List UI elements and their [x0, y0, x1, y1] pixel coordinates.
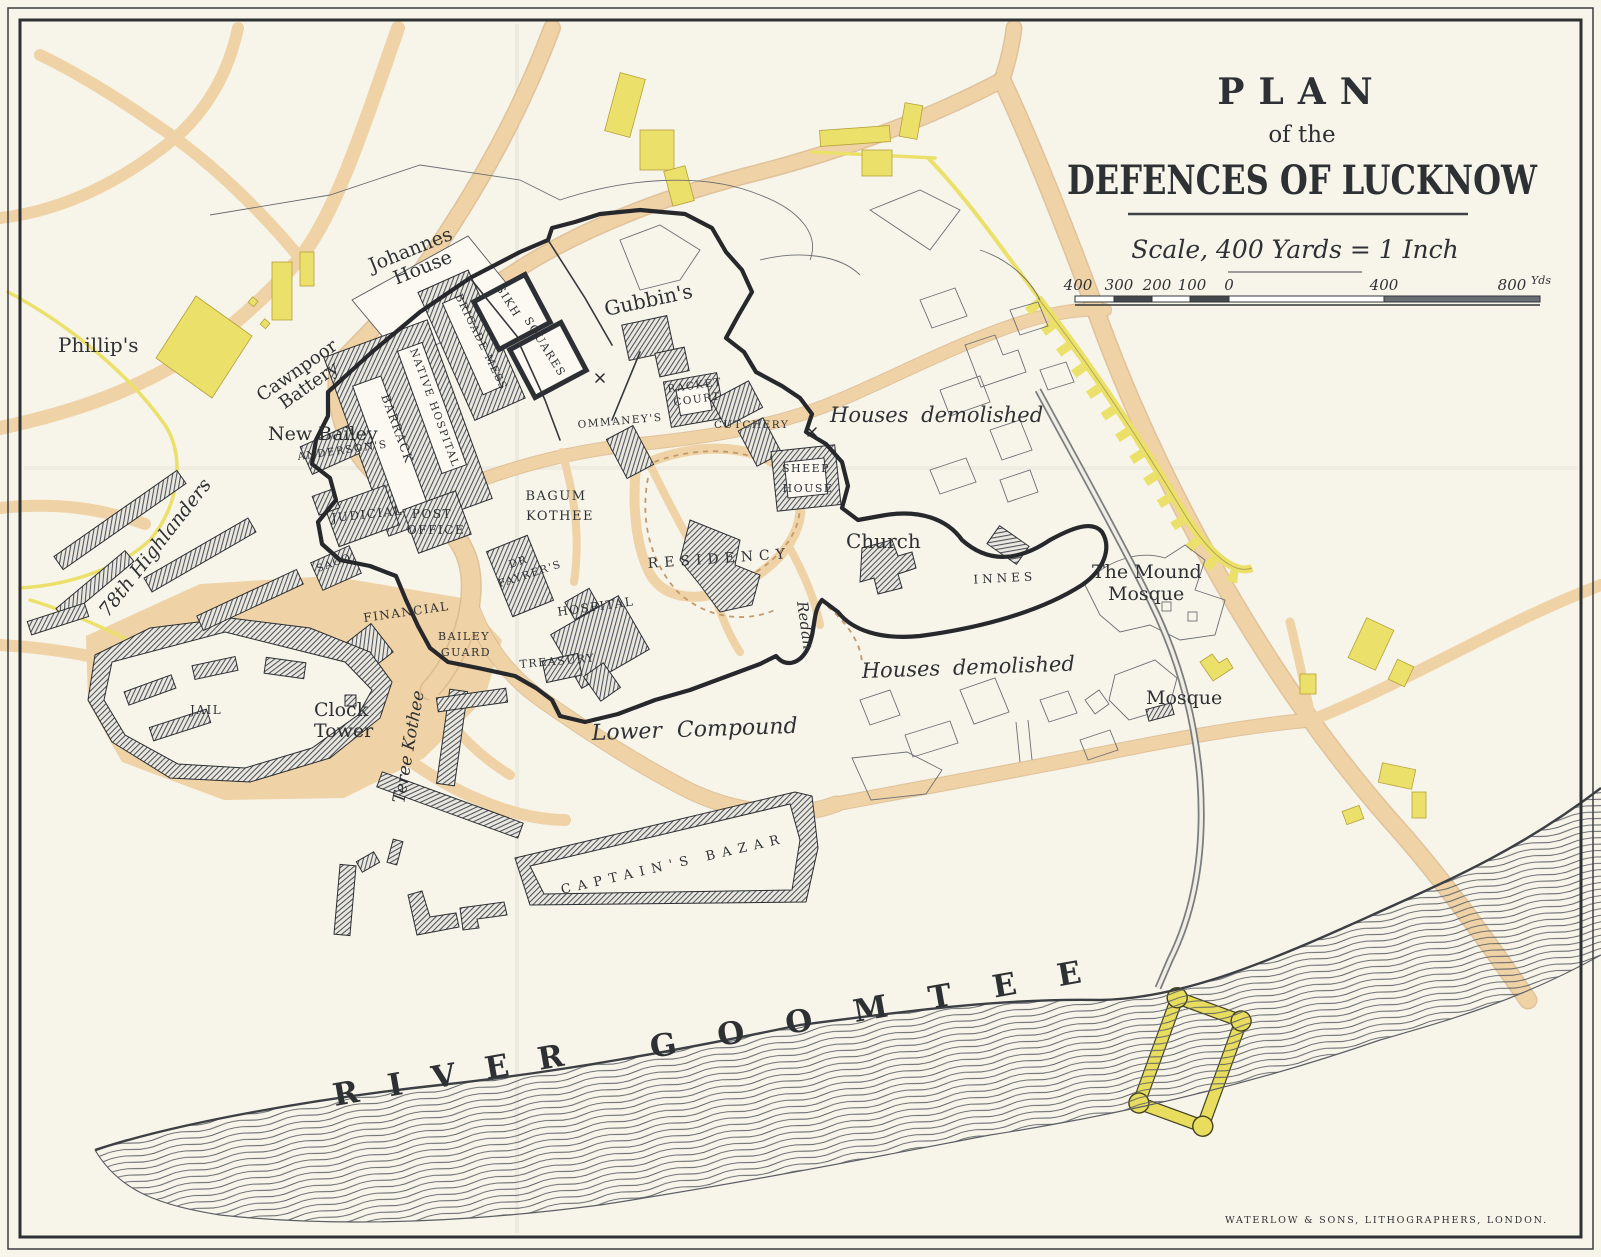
- johannes-yellow-1: [272, 262, 292, 320]
- road-south-west: [470, 604, 836, 813]
- label-post-1: POST: [412, 507, 452, 521]
- map-title-line3: DEFENCES OF LUCKNOW: [1067, 157, 1538, 204]
- mosque-yellow-chevron: [1200, 654, 1233, 681]
- scale-tick-3: 100: [1178, 276, 1207, 294]
- label-jail: JAIL: [188, 703, 222, 717]
- bazar-area-buildings: [334, 839, 507, 935]
- ommaneys-building: [606, 426, 653, 479]
- label-bailey-1: BAILEY: [438, 630, 490, 643]
- map-title-line2: of the: [1268, 122, 1335, 148]
- scale-tick-6: 800: [1498, 276, 1527, 294]
- scale-bar: 400 300 200 100 0 400 800 Yds: [1063, 274, 1552, 305]
- gubbins-buildings: [622, 316, 689, 377]
- label-sheep-1: SHEEP: [782, 462, 830, 475]
- imprint: WATERLOW & SONS, LITHOGRAPHERS, LONDON.: [1225, 1215, 1548, 1226]
- road-nw-spur: [40, 55, 300, 258]
- map-sheet: Phillip's Johannes House Cawnpoor Batter…: [0, 0, 1601, 1257]
- label-clock-1: Clock: [314, 699, 369, 721]
- scale-tick-2: 200: [1142, 276, 1172, 294]
- road-riverbank: [1002, 80, 1528, 1000]
- label-lower-compound: Lower Compound: [590, 714, 798, 746]
- label-mound-1: The Mound: [1092, 561, 1202, 583]
- road-south-east: [836, 720, 1312, 804]
- label-mosque: Mosque: [1146, 687, 1222, 709]
- label-clock-2: Tower: [314, 720, 374, 742]
- scale-tick-1: 300: [1105, 276, 1134, 294]
- map-title-line1: PLAN: [1217, 71, 1386, 113]
- label-bagum-1: BAGUM: [525, 489, 586, 504]
- lucknow-map-svg: Phillip's Johannes House Cawnpoor Batter…: [0, 0, 1601, 1257]
- label-phillips: Phillip's: [58, 333, 139, 357]
- label-post-2: OFFICE: [407, 523, 465, 537]
- scale-caption: Scale, 400 Yards = 1 Inch: [1131, 235, 1458, 264]
- label-mound-2: Mosque: [1108, 583, 1184, 605]
- label-gubbins: Gubbin's: [602, 279, 695, 321]
- label-innes: INNES: [973, 569, 1036, 586]
- johannes-yellow-2: [300, 252, 314, 286]
- label-bagum-2: KOTHEE: [526, 509, 594, 524]
- label-sheep-2: HOUSE: [783, 482, 834, 495]
- scale-tick-4: 0: [1224, 276, 1234, 294]
- label-church: Church: [846, 529, 921, 553]
- title-block: PLAN of the DEFENCES OF LUCKNOW Scale, 4…: [1063, 71, 1552, 305]
- scale-unit: Yds: [1531, 274, 1551, 287]
- scale-tick-0: 400: [1063, 276, 1093, 294]
- label-houses-demolished-n: Houses demolished: [829, 403, 1043, 427]
- label-bailey-2: GUARD: [441, 646, 491, 659]
- label-cutchery: CUTCHERY: [714, 419, 789, 431]
- scale-tick-5: 400: [1369, 276, 1399, 294]
- label-ommaneys: OMMANEY'S: [577, 412, 663, 431]
- yellow-line-ne: [928, 158, 1040, 300]
- label-houses-demolished-s: Houses demolished: [860, 652, 1075, 683]
